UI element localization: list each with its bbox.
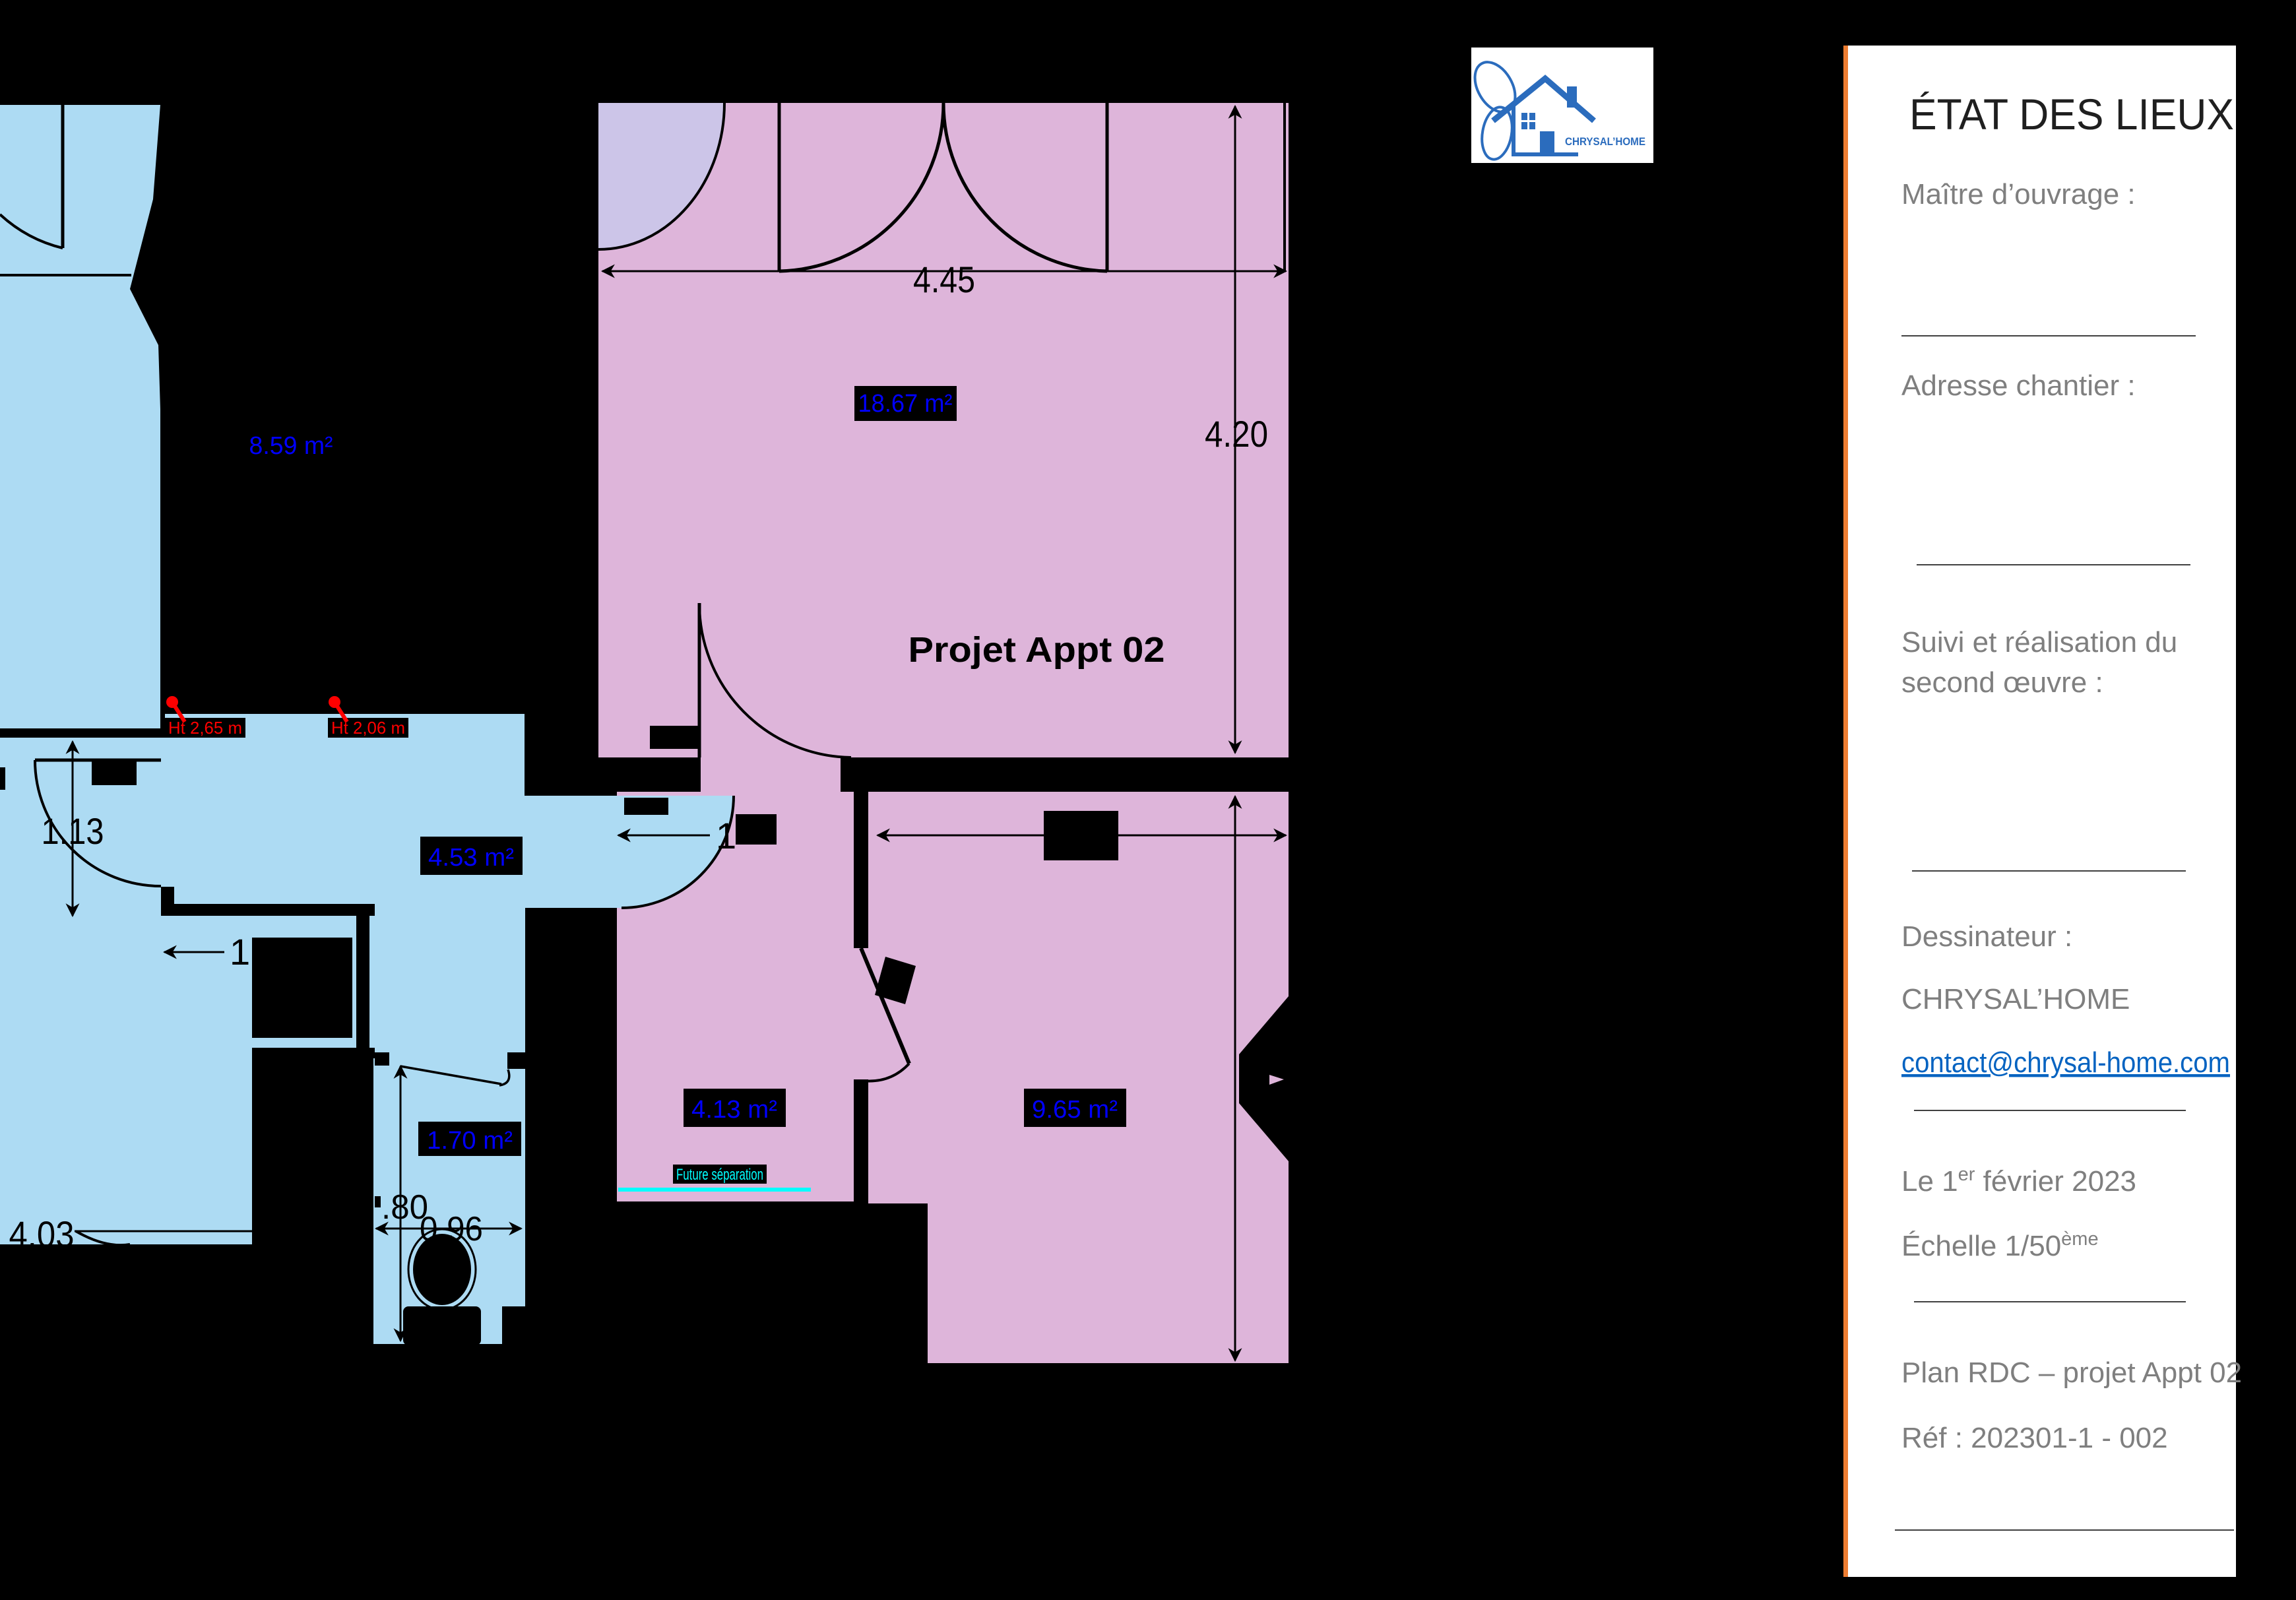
svg-text:4.13 m²: 4.13 m² <box>691 1096 777 1124</box>
svg-text:4.45: 4.45 <box>913 259 975 300</box>
svg-text:Future séparation: Future séparation <box>676 1166 763 1184</box>
svg-text:Ht 2,65 m: Ht 2,65 m <box>168 718 242 738</box>
svg-text:4.53 m²: 4.53 m² <box>428 844 514 872</box>
svg-text:ÉTAT DES LIEUX: ÉTAT DES LIEUX <box>1909 90 2234 139</box>
svg-text:1.13: 1.13 <box>42 810 104 852</box>
svg-text:CHRYSAL’HOME: CHRYSAL’HOME <box>1901 983 2130 1015</box>
svg-text:9.65 m²: 9.65 m² <box>1032 1096 1118 1124</box>
svg-text:Le 1er février 2023: Le 1er février 2023 <box>1901 1164 2136 1198</box>
svg-text:4.03: 4.03 <box>9 1213 75 1255</box>
svg-text:CHRYSAL’HOME: CHRYSAL’HOME <box>1565 135 1645 148</box>
svg-text:Plan RDC – projet Appt 02: Plan RDC – projet Appt 02 <box>1901 1357 2242 1389</box>
svg-text:Suivi et réalisation du: Suivi et réalisation du <box>1901 626 2177 658</box>
svg-text:contact@chrysal-home.com: contact@chrysal-home.com <box>1901 1046 2230 1079</box>
svg-text:Maître d’ouvrage :: Maître d’ouvrage : <box>1901 178 2136 210</box>
svg-text:1: 1 <box>230 931 250 973</box>
svg-text:18.67 m²: 18.67 m² <box>858 390 953 418</box>
svg-text:1.70 m²: 1.70 m² <box>427 1127 513 1155</box>
svg-text:Projet Appt 02: Projet Appt 02 <box>909 630 1165 670</box>
svg-text:second œuvre :: second œuvre : <box>1901 666 2103 699</box>
svg-text:1: 1 <box>716 815 736 856</box>
svg-text:Ht 2,06 m: Ht 2,06 m <box>331 718 405 738</box>
svg-text:8.59 m²: 8.59 m² <box>249 432 333 460</box>
svg-text:Adresse chantier :: Adresse chantier : <box>1901 369 2136 402</box>
svg-text:Dessinateur :: Dessinateur : <box>1901 920 2072 953</box>
svg-text:Réf : 202301-1 - 002: Réf : 202301-1 - 002 <box>1901 1422 2168 1454</box>
svg-text:4.20: 4.20 <box>1205 413 1268 455</box>
